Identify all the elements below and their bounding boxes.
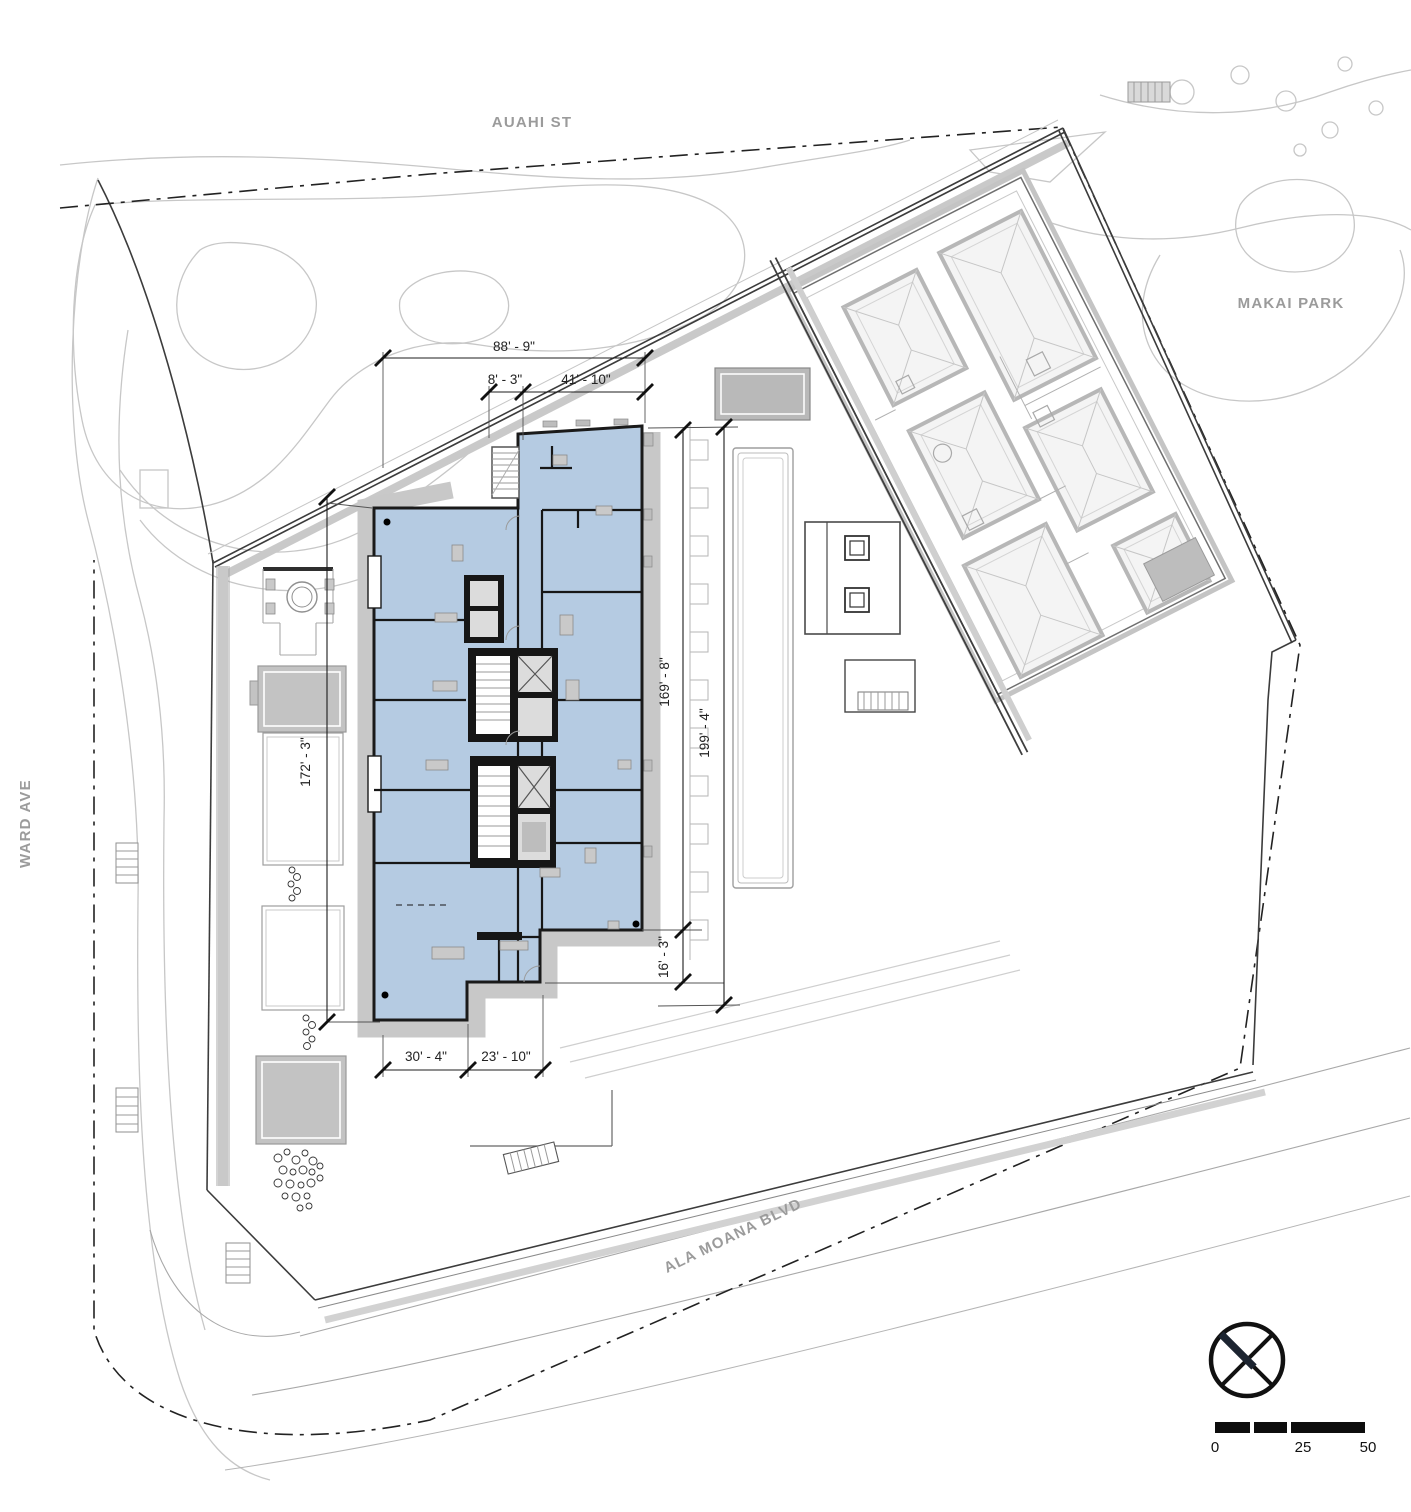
tower-footprint <box>366 419 653 1029</box>
planter-gray-1 <box>250 666 346 732</box>
scale-segment <box>1254 1422 1287 1433</box>
column-dot <box>382 992 389 999</box>
lawn-panel-2 <box>262 906 344 1010</box>
northwest-stair <box>492 447 519 498</box>
column-dot <box>633 921 640 928</box>
dim-top-small: 8' - 3" <box>488 372 523 387</box>
dim-bottom-left: 30' - 4" <box>405 1049 447 1064</box>
spa-pad <box>715 368 810 420</box>
balcony-teeth-strip <box>690 425 708 960</box>
lap-pool <box>733 448 793 888</box>
street-label-auahi: AUAHI ST <box>492 114 572 131</box>
podium-stair <box>845 660 915 712</box>
street-label-ward: WARD AVE <box>17 779 34 868</box>
dim-east-inner: 169' - 8" <box>657 657 672 707</box>
column-dot <box>384 519 391 526</box>
elevator-core-upper <box>464 575 504 643</box>
hatch-pad <box>1128 82 1170 102</box>
planter-gray-2 <box>256 1056 346 1144</box>
scale-segment <box>1291 1422 1365 1433</box>
podium-building <box>805 522 900 634</box>
dim-top-mid: 41' - 10" <box>561 372 611 387</box>
scale-segment <box>1215 1422 1250 1433</box>
dim-overall-top: 88' - 9" <box>493 339 535 354</box>
dim-west-side: 172' - 3" <box>298 737 313 787</box>
dim-bottom-right: 23' - 10" <box>481 1049 531 1064</box>
balcony-notch <box>368 756 381 812</box>
scale-label-mid: 25 <box>1295 1439 1312 1456</box>
dim-southeast: 16' - 3" <box>656 936 671 978</box>
site-plan-sheet: 88' - 9" 8' - 3" 41' - 10" 172' - 3" 169… <box>0 0 1411 1512</box>
park-label-makai: MAKAI PARK <box>1238 295 1345 312</box>
scale-label-zero: 0 <box>1211 1439 1219 1456</box>
core-lower <box>470 756 556 868</box>
balcony-notch <box>368 556 381 608</box>
dim-east-outer: 199' - 4" <box>697 708 712 758</box>
cross-wall <box>477 932 522 940</box>
scale-label-end: 50 <box>1360 1439 1377 1456</box>
core-center <box>468 648 558 742</box>
